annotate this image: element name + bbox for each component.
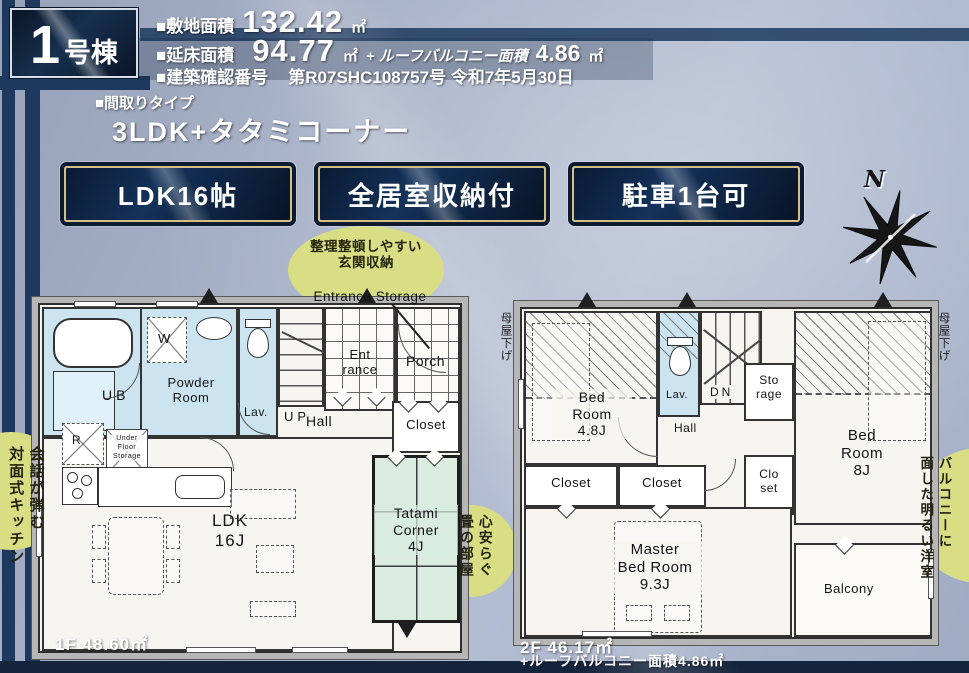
bathtub-icon [53, 318, 133, 368]
tatami-vent-mark [398, 623, 416, 638]
window-2f-left [518, 379, 524, 429]
closet-1f-label: Closet [398, 417, 454, 432]
room-lav-1f: Lav. [238, 307, 278, 437]
feature-badge-storage-label: 全居室収納付 [348, 176, 516, 213]
compass-icon [838, 180, 942, 284]
dining-chair-2 [92, 559, 106, 583]
badge-band [0, 76, 150, 90]
flyer-page: 1 号棟 ■敷地面積 132.42 ㎡ ■延床面積 94.77 ㎡ + ルーフバ… [0, 0, 969, 673]
closet-2f-1-label: Closet [534, 475, 608, 490]
stove-icon [62, 467, 98, 505]
vent-mark-1f-a [200, 288, 218, 303]
room-bed-8 [794, 311, 932, 525]
feature-badge-ldk-label: LDK16帖 [118, 176, 238, 213]
sink-icon [175, 475, 225, 499]
room-powder: W Powder Room [140, 307, 238, 437]
roof-balcony-unit: ㎡ [588, 45, 603, 66]
permit-label: ■建築確認番号 [156, 63, 268, 88]
badge-suffix: 号棟 [64, 31, 118, 70]
feature-badge-ldk: LDK16帖 [64, 166, 292, 222]
layout-type-value-row: 3LDK+タタミコーナー [112, 110, 411, 149]
balcony-label: Balcony [824, 581, 874, 596]
permit-value: 第R07SHC108757号 令和7年5月30日 [288, 63, 573, 88]
floor2-area-note: +ルーフバルコニー面積4.86㎡ [520, 651, 724, 671]
bed48-label: Bed Room 4.8J [552, 389, 632, 439]
dining-table [108, 517, 164, 595]
under-floor-storage-label: Under Floor Storage [108, 435, 146, 461]
room-lav-2f: Lav. [658, 311, 700, 417]
dining-chair-3 [166, 525, 180, 549]
bed8-label: Bed Room 8J [822, 427, 902, 480]
window-1f-top-1 [74, 301, 116, 307]
kitchen-counter [98, 467, 232, 507]
window-1f-bottom-1 [186, 647, 256, 653]
vent-mark-2f-c [874, 292, 892, 307]
feature-badge-parking-label: 駐車1台可 [622, 176, 750, 213]
refrigerator-space-icon [62, 423, 104, 465]
tatami-label: Tatami Corner 4J [374, 505, 458, 555]
vent-mark-2f-a [578, 292, 596, 307]
dn-label: DN [710, 385, 733, 399]
lav-1f-label: Lav. [244, 405, 268, 419]
toilet-icon-1f [247, 323, 271, 358]
floor2-plan: Bed Room 4.8J Lav. DN Sto rage Hall Bed … [520, 307, 932, 639]
tv-board [250, 601, 296, 617]
master-pillow-2 [664, 605, 690, 621]
stairs-1f [278, 307, 324, 407]
entrance-label: Ent rance [332, 347, 388, 378]
floor1-plan: UB W Powder Room Lav. UP Ent rance Porch… [38, 303, 462, 653]
floor1-area-label: 1F 48.60㎡ [55, 630, 148, 655]
vent-mark-2f-b [678, 292, 696, 307]
porch-label: Porch [406, 353, 445, 370]
closet-2f-3-label: Clo set [750, 467, 788, 495]
master-door-arc [704, 459, 736, 491]
bottom-bar [0, 661, 969, 673]
ldk-label: LDK 16J [190, 511, 270, 551]
moya-sage-left-note: 母屋下げ [498, 312, 514, 404]
washbasin-icon [196, 317, 232, 340]
washer-label: W [158, 331, 171, 346]
lav-2f-label: Lav. [666, 389, 688, 402]
moya-sage-right-note: 母屋下げ [936, 312, 952, 404]
bed-icon-8 [868, 321, 926, 441]
layout-type-value: 3LDK+タタミコーナー [112, 110, 411, 149]
feature-badge-parking: 駐車1台可 [572, 166, 800, 222]
permit-row: ■建築確認番号 第R07SHC108757号 令和7年5月30日 [156, 63, 574, 88]
window-1f-bottom-2 [292, 647, 348, 653]
toilet-icon-2f [669, 341, 693, 376]
master-bed-label: Master Bed Room 9.3J [580, 541, 730, 594]
badge-number: 1 [30, 21, 60, 70]
tatami-note: 心安らぐ 畳の部屋 [456, 514, 494, 614]
entrance-storage-note-en: Entrance Storage [300, 289, 440, 305]
refrigerator-label: R [72, 433, 81, 447]
entrance-storage-note-jp: 整理整頓しやすい 玄関収納 [296, 240, 436, 272]
feature-badge-storage: 全居室収納付 [318, 166, 546, 222]
window-1f-top-2 [156, 301, 198, 307]
storage-label: Sto rage [748, 373, 790, 401]
building-badge: 1 号棟 [10, 8, 138, 78]
hall-1f-label: Hall [306, 413, 332, 430]
master-pillow-1 [626, 605, 652, 621]
balcony-room-note: バルコニーに 面した明るい洋室 [916, 456, 952, 606]
powder-room-label: Powder Room [154, 375, 228, 406]
dining-chair-1 [92, 525, 106, 549]
hall-2f-label: Hall [674, 421, 697, 435]
dining-chair-4 [166, 559, 180, 583]
closet-2f-2-label: Closet [626, 475, 698, 490]
kitchen-note: 会話が弾む 対面式キッチン [6, 446, 47, 576]
unit-bath-label: UB [102, 387, 129, 404]
